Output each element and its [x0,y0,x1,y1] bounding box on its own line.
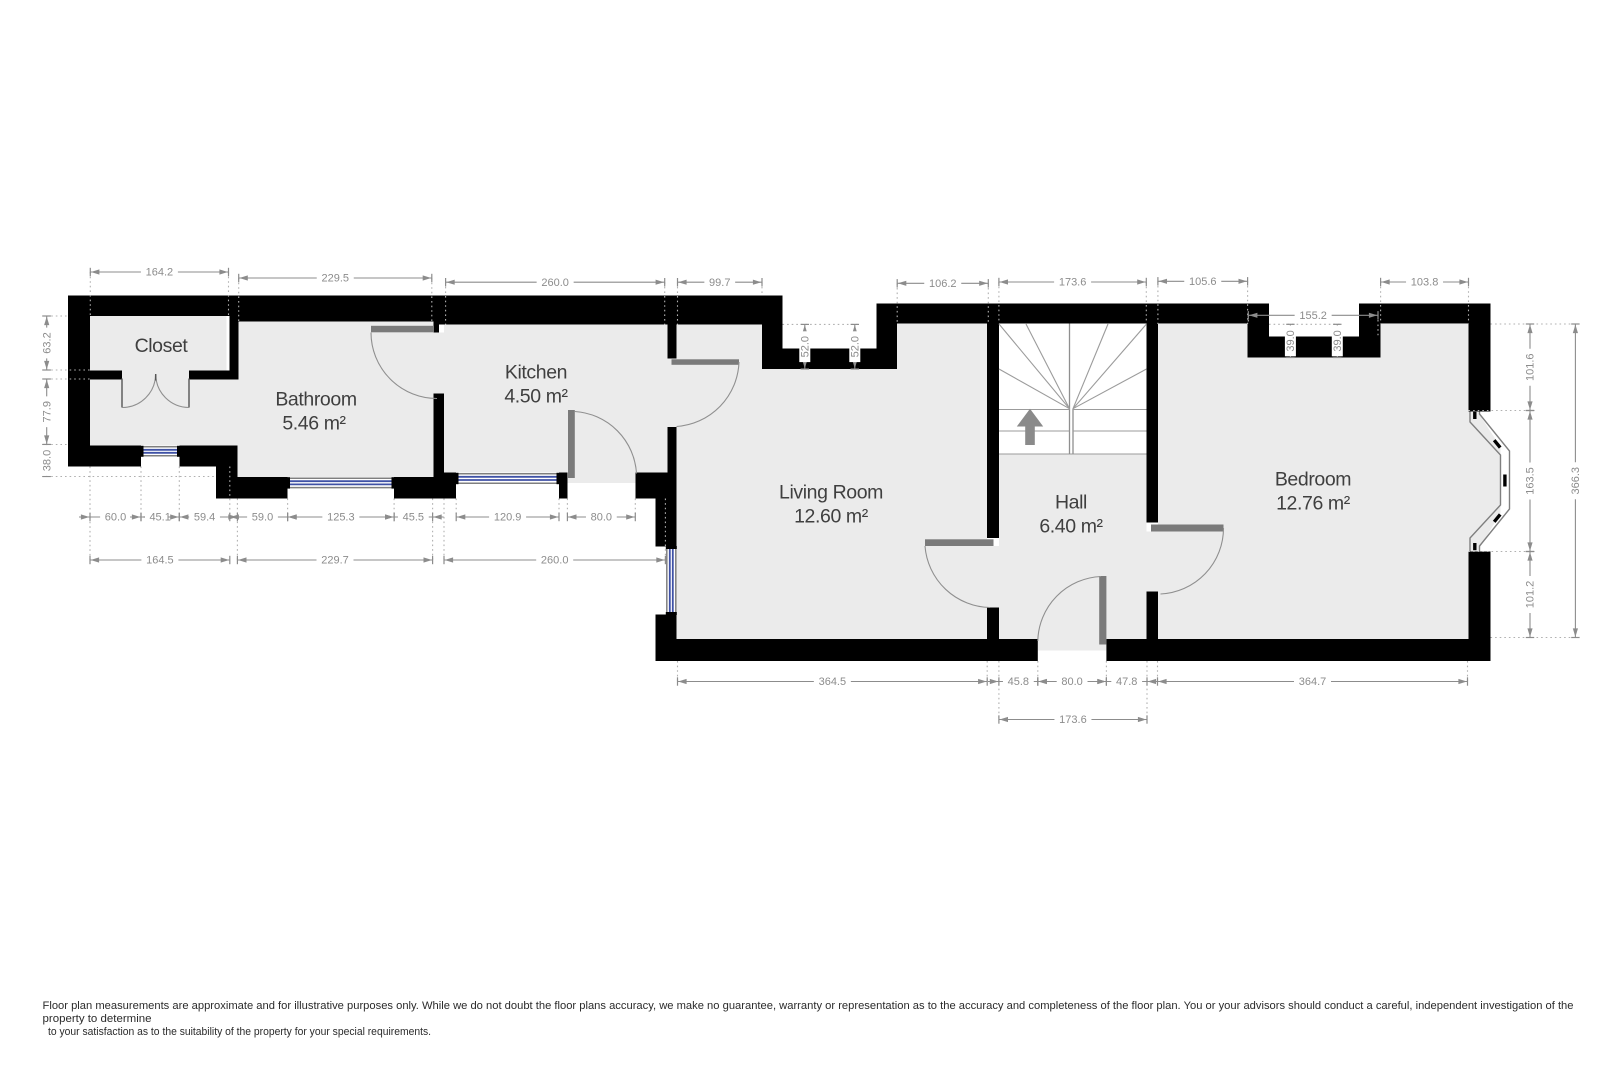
svg-text:52.0: 52.0 [799,336,811,357]
svg-text:12.76 m²: 12.76 m² [1276,493,1351,515]
svg-text:39.0: 39.0 [1332,330,1344,351]
svg-text:364.5: 364.5 [819,676,847,688]
svg-text:173.6: 173.6 [1059,277,1087,289]
svg-text:property to determine: property to determine [43,1013,152,1025]
svg-text:366.3: 366.3 [1570,467,1582,495]
svg-text:125.3: 125.3 [327,512,355,524]
svg-text:12.60 m²: 12.60 m² [794,506,869,528]
svg-text:77.9: 77.9 [41,401,53,422]
svg-text:52.0: 52.0 [849,336,861,357]
svg-text:164.5: 164.5 [146,555,174,567]
svg-text:Living Room: Living Room [779,482,883,504]
svg-text:6.40 m²: 6.40 m² [1039,516,1103,538]
svg-text:120.9: 120.9 [494,512,522,524]
svg-text:99.7: 99.7 [709,277,730,289]
svg-text:80.0: 80.0 [591,512,612,524]
svg-text:260.0: 260.0 [541,277,569,289]
svg-text:5.46 m²: 5.46 m² [282,413,346,435]
svg-text:80.0: 80.0 [1061,676,1082,688]
svg-text:101.6: 101.6 [1525,353,1537,381]
svg-text:45.1: 45.1 [149,512,170,524]
svg-text:45.5: 45.5 [403,512,424,524]
svg-text:163.5: 163.5 [1525,467,1537,495]
svg-text:101.2: 101.2 [1525,581,1537,609]
svg-text:155.2: 155.2 [1299,310,1327,322]
svg-text:Hall: Hall [1055,492,1087,514]
svg-text:364.7: 364.7 [1299,676,1327,688]
svg-text:106.2: 106.2 [929,278,957,290]
svg-text:59.0: 59.0 [252,512,273,524]
svg-text:Kitchen: Kitchen [505,362,567,384]
svg-text:47.8: 47.8 [1116,676,1137,688]
svg-text:45.8: 45.8 [1008,676,1029,688]
svg-text:229.7: 229.7 [321,555,349,567]
svg-text:39.0: 39.0 [1285,330,1297,351]
svg-text:Bedroom: Bedroom [1275,469,1351,491]
svg-text:260.0: 260.0 [541,555,569,567]
svg-text:Closet: Closet [135,335,189,357]
svg-text:173.6: 173.6 [1059,714,1087,726]
svg-text:4.50 m²: 4.50 m² [504,386,568,408]
svg-text:59.4: 59.4 [194,512,215,524]
svg-text:60.0: 60.0 [105,512,126,524]
svg-text:229.5: 229.5 [321,273,349,285]
svg-text:Floor plan measurements are ap: Floor plan measurements are approximate … [43,1000,1574,1012]
svg-text:38.0: 38.0 [41,450,53,471]
svg-text:63.2: 63.2 [41,332,53,353]
svg-text:to your satisfaction as to the: to your satisfaction as to the suitabili… [48,1026,431,1038]
svg-text:Bathroom: Bathroom [275,389,356,411]
svg-text:164.2: 164.2 [146,267,174,279]
svg-text:103.8: 103.8 [1411,277,1439,289]
svg-text:105.6: 105.6 [1189,276,1217,288]
